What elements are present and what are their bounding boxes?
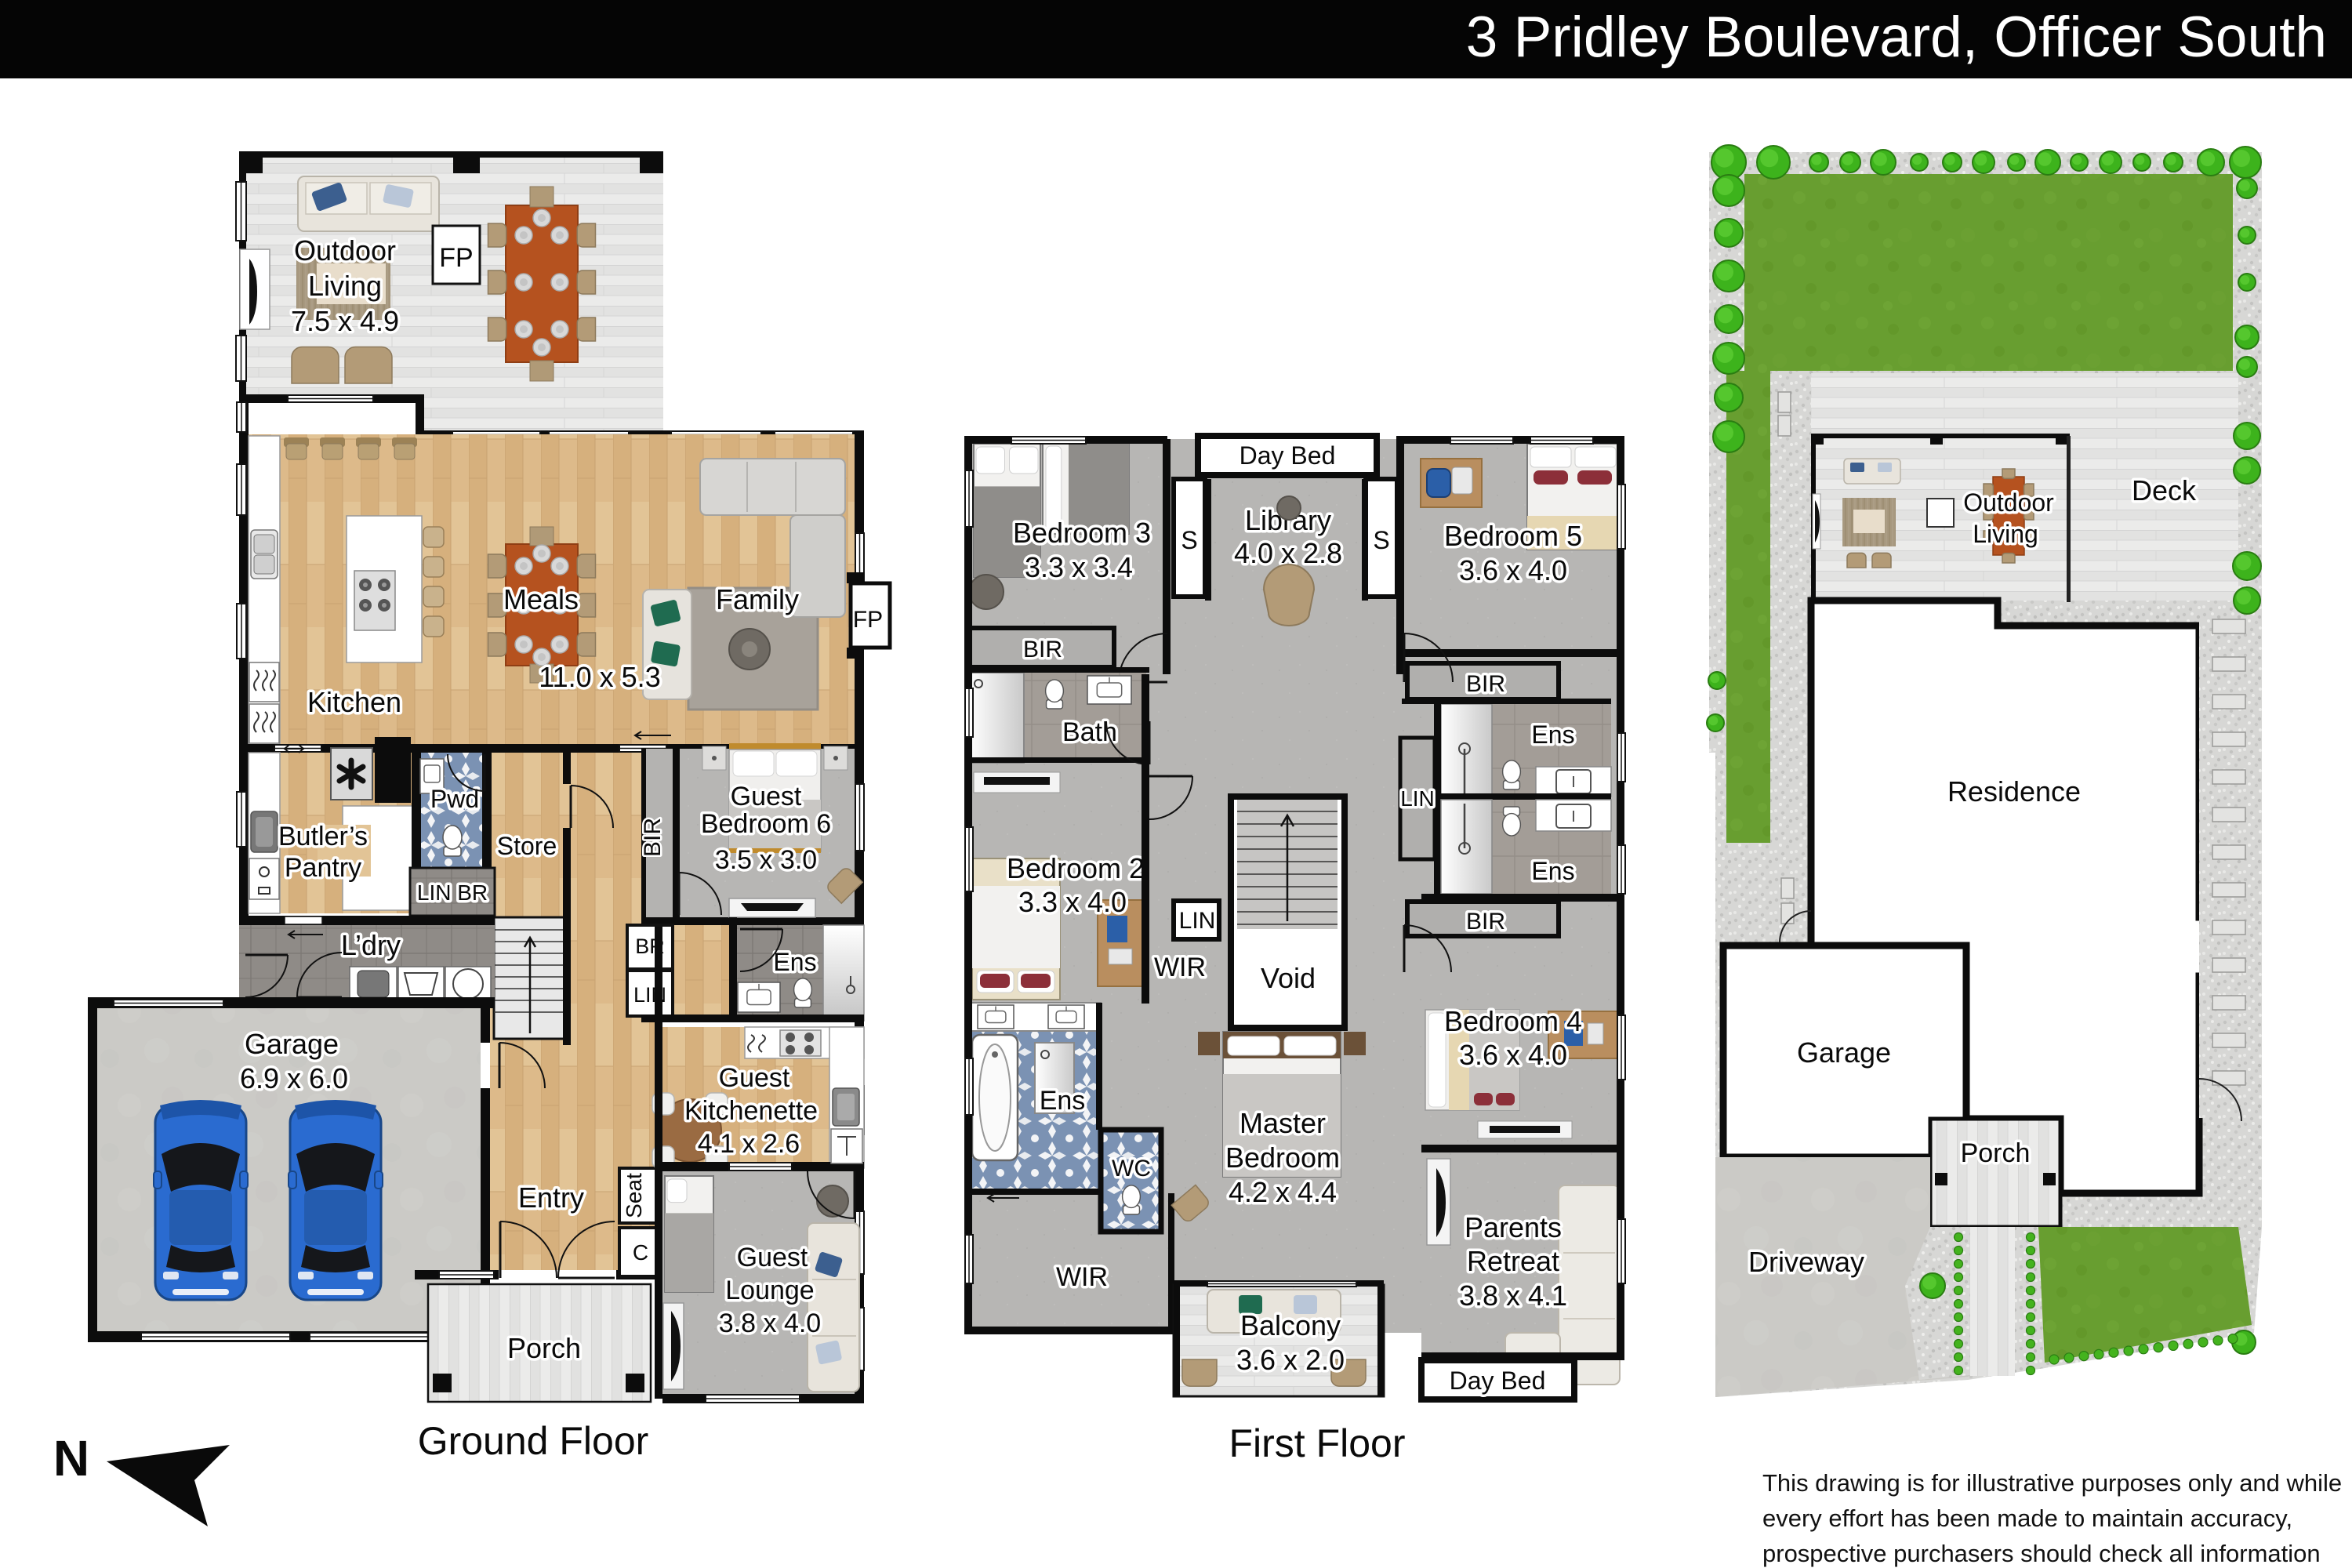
svg-text:Ground Floor: Ground Floor xyxy=(418,1419,649,1463)
svg-text:every effort has been made to: every effort has been made to maintain a… xyxy=(1762,1504,2292,1532)
svg-text:This drawing is for illustrati: This drawing is for illustrative purpose… xyxy=(1762,1469,2342,1497)
svg-text:N: N xyxy=(53,1430,89,1486)
svg-text:11.0 x 5.3: 11.0 x 5.3 xyxy=(539,661,660,693)
svg-text:S: S xyxy=(1181,526,1197,554)
svg-text:Meals: Meals xyxy=(503,583,579,615)
svg-text:4.2 x 4.4: 4.2 x 4.4 xyxy=(1229,1176,1337,1208)
svg-text:First Floor: First Floor xyxy=(1229,1421,1406,1465)
svg-text:3.6 x 4.0: 3.6 x 4.0 xyxy=(1459,1039,1567,1071)
svg-text:Parents: Parents xyxy=(1465,1211,1562,1243)
svg-text:Residence: Residence xyxy=(1947,775,2081,808)
svg-text:Ens: Ens xyxy=(773,948,816,976)
svg-text:Ens: Ens xyxy=(1040,1086,1086,1116)
svg-text:Deck: Deck xyxy=(2132,474,2197,506)
svg-text:3.8 x 4.0: 3.8 x 4.0 xyxy=(719,1308,821,1338)
svg-text:Store: Store xyxy=(497,832,557,860)
svg-text:WIR: WIR xyxy=(1154,953,1206,982)
svg-text:LIN: LIN xyxy=(1400,786,1435,811)
svg-text:Living: Living xyxy=(308,270,382,302)
svg-text:3.3 x 3.4: 3.3 x 3.4 xyxy=(1025,551,1133,583)
svg-text:BIR: BIR xyxy=(640,818,666,857)
svg-text:FP: FP xyxy=(439,243,473,273)
svg-text:Bedroom 4: Bedroom 4 xyxy=(1444,1005,1582,1037)
svg-text:4.1 x 2.6: 4.1 x 2.6 xyxy=(698,1129,800,1159)
svg-text:Garage: Garage xyxy=(1797,1036,1891,1069)
svg-text:Porch: Porch xyxy=(507,1332,581,1364)
svg-text:Entry: Entry xyxy=(518,1181,584,1214)
svg-text:Living: Living xyxy=(1973,520,2038,548)
svg-text:BIR: BIR xyxy=(1466,671,1505,697)
svg-text:Lounge: Lounge xyxy=(725,1276,814,1305)
svg-text:Butler’s: Butler’s xyxy=(278,822,368,851)
svg-text:Seat: Seat xyxy=(622,1173,646,1218)
svg-text:Outdoor: Outdoor xyxy=(1963,488,2054,517)
svg-text:3.6 x 4.0: 3.6 x 4.0 xyxy=(1459,554,1567,586)
svg-text:Balcony: Balcony xyxy=(1240,1309,1341,1341)
svg-text:Bath: Bath xyxy=(1062,717,1117,747)
svg-text:Ens: Ens xyxy=(1531,720,1574,749)
svg-text:BIR: BIR xyxy=(1023,637,1062,662)
svg-text:Porch: Porch xyxy=(1961,1138,2031,1168)
svg-text:Day Bed: Day Bed xyxy=(1450,1367,1546,1395)
svg-text:Bedroom 3: Bedroom 3 xyxy=(1013,517,1151,549)
svg-text:WIR: WIR xyxy=(1056,1262,1108,1292)
svg-text:BIR: BIR xyxy=(1466,909,1505,935)
svg-text:LIN BR: LIN BR xyxy=(417,880,488,905)
svg-text:3.6 x 2.0: 3.6 x 2.0 xyxy=(1236,1344,1345,1376)
svg-text:3.8 x 4.1: 3.8 x 4.1 xyxy=(1459,1279,1567,1312)
svg-text:Bedroom 6: Bedroom 6 xyxy=(701,809,831,839)
svg-text:Ens: Ens xyxy=(1531,857,1574,885)
svg-text:Kitchenette: Kitchenette xyxy=(684,1096,818,1126)
svg-text:Pantry: Pantry xyxy=(285,853,361,883)
svg-text:Master: Master xyxy=(1240,1107,1326,1139)
svg-text:Day Bed: Day Bed xyxy=(1240,441,1336,470)
svg-text:Retreat: Retreat xyxy=(1467,1245,1559,1277)
svg-text:FP: FP xyxy=(853,607,883,633)
svg-text:Driveway: Driveway xyxy=(1748,1246,1864,1278)
svg-text:Bedroom 2: Bedroom 2 xyxy=(1007,852,1145,884)
svg-text:Family: Family xyxy=(716,583,799,615)
svg-text:Guest: Guest xyxy=(731,782,802,811)
svg-text:Void: Void xyxy=(1261,962,1316,994)
svg-text:Bedroom 5: Bedroom 5 xyxy=(1444,520,1582,552)
svg-text:LIN: LIN xyxy=(1179,908,1216,934)
svg-text:Guest: Guest xyxy=(719,1063,790,1093)
svg-text:C: C xyxy=(633,1240,648,1265)
svg-text:WC: WC xyxy=(1112,1156,1151,1181)
svg-text:S: S xyxy=(1373,526,1389,554)
svg-text:prospective purchasers should: prospective purchasers should check all … xyxy=(1762,1540,2321,1567)
svg-text:3.3 x 4.0: 3.3 x 4.0 xyxy=(1018,886,1127,918)
svg-text:7.5 x 4.9: 7.5 x 4.9 xyxy=(291,305,399,337)
svg-text:L’dry: L’dry xyxy=(341,929,401,961)
svg-text:Kitchen: Kitchen xyxy=(307,686,401,718)
svg-text:3 Pridley Boulevard, Officer S: 3 Pridley Boulevard, Officer South xyxy=(1466,5,2327,69)
svg-text:6.9 x 6.0: 6.9 x 6.0 xyxy=(240,1062,348,1094)
svg-text:Outdoor: Outdoor xyxy=(294,234,396,267)
svg-text:Guest: Guest xyxy=(737,1243,808,1272)
svg-text:Bedroom: Bedroom xyxy=(1225,1142,1340,1174)
svg-text:3.5 x 3.0: 3.5 x 3.0 xyxy=(715,845,817,875)
svg-text:Garage: Garage xyxy=(245,1028,339,1060)
